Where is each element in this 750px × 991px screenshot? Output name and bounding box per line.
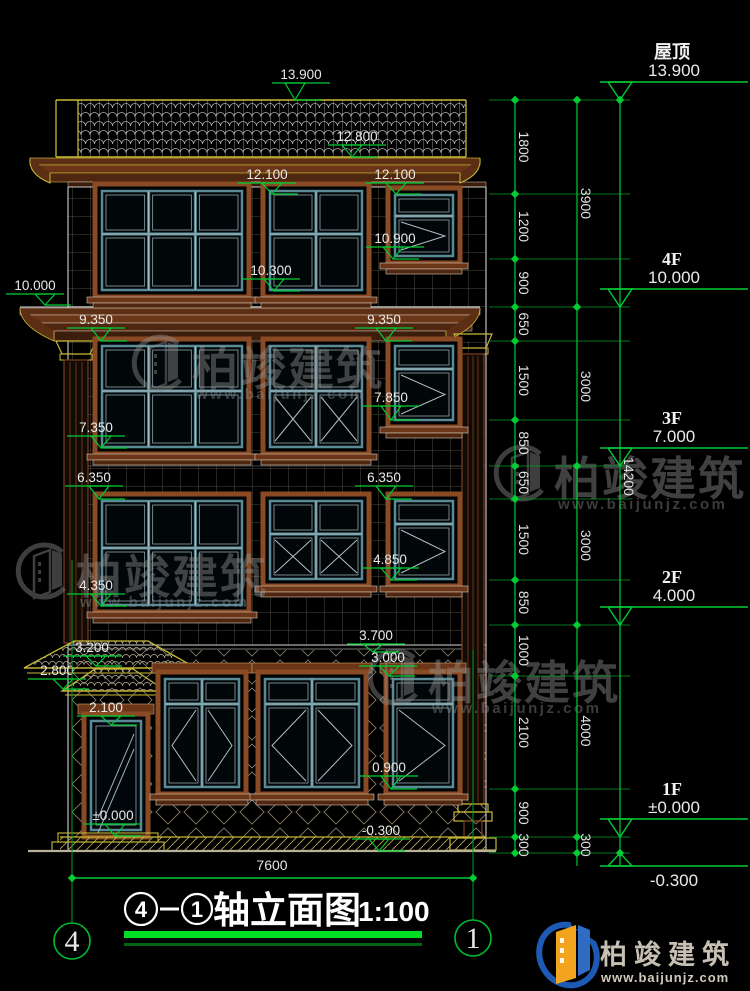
chain-dimension: 1500 — [516, 365, 532, 396]
watermark-url: www.baijunjz.com — [557, 496, 727, 513]
chain-dimension: 650 — [516, 471, 532, 495]
overall-dimension: 7600 — [68, 857, 477, 882]
elevation-value: 13.900 — [280, 67, 321, 82]
chain-dimension: 300 — [578, 833, 594, 857]
floor-level-marker: 4F10.000 — [600, 249, 748, 307]
floor-level-marker: -0.300 — [600, 853, 748, 890]
window — [87, 184, 257, 308]
floor-elevation: 7.000 — [653, 427, 696, 446]
drawing-scale: 1:100 — [358, 896, 430, 927]
elevation-value: 10.900 — [374, 231, 415, 246]
floor-elevation: -0.300 — [650, 871, 698, 890]
floor-level-marker: 屋顶13.900 — [600, 42, 748, 100]
floor-name: 4F — [662, 249, 682, 269]
elevation-value: 7.350 — [79, 420, 113, 435]
floor-elevation: 13.900 — [648, 61, 700, 80]
elevation-value: 12.100 — [374, 167, 415, 182]
chain-dimension: 300 — [516, 833, 532, 857]
elevation-value: 0.900 — [372, 760, 406, 775]
window — [255, 494, 377, 597]
chain-dimension: 1200 — [516, 211, 532, 242]
elevation-value: 2.800 — [40, 663, 74, 678]
chain-dimension: 1500 — [516, 524, 532, 555]
window — [250, 663, 374, 805]
window — [380, 494, 468, 597]
floor-elevation: ±0.000 — [648, 798, 700, 817]
cad-elevation-sheet: 柏竣建筑www.baijunjz.com柏竣建筑www.baijunjz.com… — [0, 0, 750, 991]
floor-elevation: 4.000 — [653, 586, 696, 605]
elevation-value: 6.350 — [367, 470, 401, 485]
watermark-url: www.baijunjz.com — [431, 700, 601, 717]
chain-dimension: 650 — [516, 312, 532, 336]
elevation-value: 10.300 — [250, 263, 291, 278]
elevation-drawing: 柏竣建筑www.baijunjz.com柏竣建筑www.baijunjz.com… — [0, 0, 750, 991]
title-axis-start: 4 — [135, 897, 148, 922]
chain-dimension: 3000 — [578, 530, 594, 561]
chain-dimension: 850 — [516, 431, 532, 455]
watermark: 柏竣建筑www.baijunjz.com — [18, 545, 268, 611]
elevation-value: 3.200 — [75, 640, 109, 655]
axis-bubble-left: 4 — [54, 923, 90, 959]
floor-name: 1F — [662, 779, 682, 799]
elevation-value: 4.350 — [79, 578, 113, 593]
floor-elevation: 10.000 — [648, 268, 700, 287]
logo-building-icon — [556, 925, 576, 984]
title-axis-end: 1 — [191, 897, 203, 922]
elevation-value: 6.350 — [77, 470, 111, 485]
roof-tile-band — [56, 100, 466, 157]
chain-dimension: 4000 — [578, 715, 594, 746]
chain-dimension: 1000 — [516, 635, 532, 666]
logo-company-name: 柏竣建筑 — [600, 939, 736, 970]
plinth — [60, 837, 486, 851]
overall-width-value: 7600 — [256, 857, 287, 873]
floor-level-marker: 1F±0.000 — [600, 779, 748, 837]
chain-dimension: 14200 — [621, 457, 637, 496]
chain-dimension: 2100 — [516, 717, 532, 748]
elevation-value: 9.350 — [367, 312, 401, 327]
elevation-value: 4.850 — [373, 552, 407, 567]
elevation-value: 3.700 — [359, 628, 393, 643]
drawing-title-text: 轴立面图 — [213, 890, 361, 931]
watermark-url: www.baijunjz.com — [195, 386, 365, 403]
chain-dimension: 900 — [516, 271, 532, 295]
elevation-value: -0.300 — [362, 823, 400, 838]
chain-dimension: 3900 — [578, 188, 594, 219]
floor-name: 屋顶 — [654, 42, 690, 62]
floor-name: 3F — [662, 408, 682, 428]
axis-bubble-left-number: 4 — [65, 925, 80, 958]
elevation-value: 2.100 — [89, 700, 123, 715]
company-logo: 柏竣建筑 www.baijunjz.com — [528, 914, 736, 991]
title-underline-thin — [124, 943, 422, 946]
axis-bubble-right: 1 — [455, 920, 491, 956]
elevation-value: 12.800 — [336, 129, 377, 144]
elevation-value: ±0.000 — [92, 808, 133, 823]
elevation-value: 10.000 — [14, 278, 55, 293]
elevation-marker: 13.900 — [272, 67, 330, 100]
chain-dimension: 850 — [516, 591, 532, 615]
elevation-value: 3.000 — [371, 650, 405, 665]
elevation-value: 9.350 — [79, 312, 113, 327]
floor-level-marker: 2F4.000 — [600, 567, 748, 625]
elevation-value: 7.850 — [374, 390, 408, 405]
logo-website: www.baijunjz.com — [600, 970, 729, 985]
window — [150, 663, 254, 805]
window — [380, 339, 468, 438]
axis-bubble-right-number: 1 — [466, 922, 481, 955]
chain-dimension: 900 — [516, 801, 532, 825]
title-underline — [124, 931, 422, 938]
floor-name: 2F — [662, 567, 682, 587]
chain-dimension: 3000 — [578, 371, 594, 402]
elevation-marker: 10.000 — [6, 278, 71, 305]
elevation-value: 12.100 — [246, 167, 287, 182]
title-block: 4 1 轴立面图 1:100 — [124, 890, 430, 946]
chain-dimension: 1800 — [516, 131, 532, 162]
